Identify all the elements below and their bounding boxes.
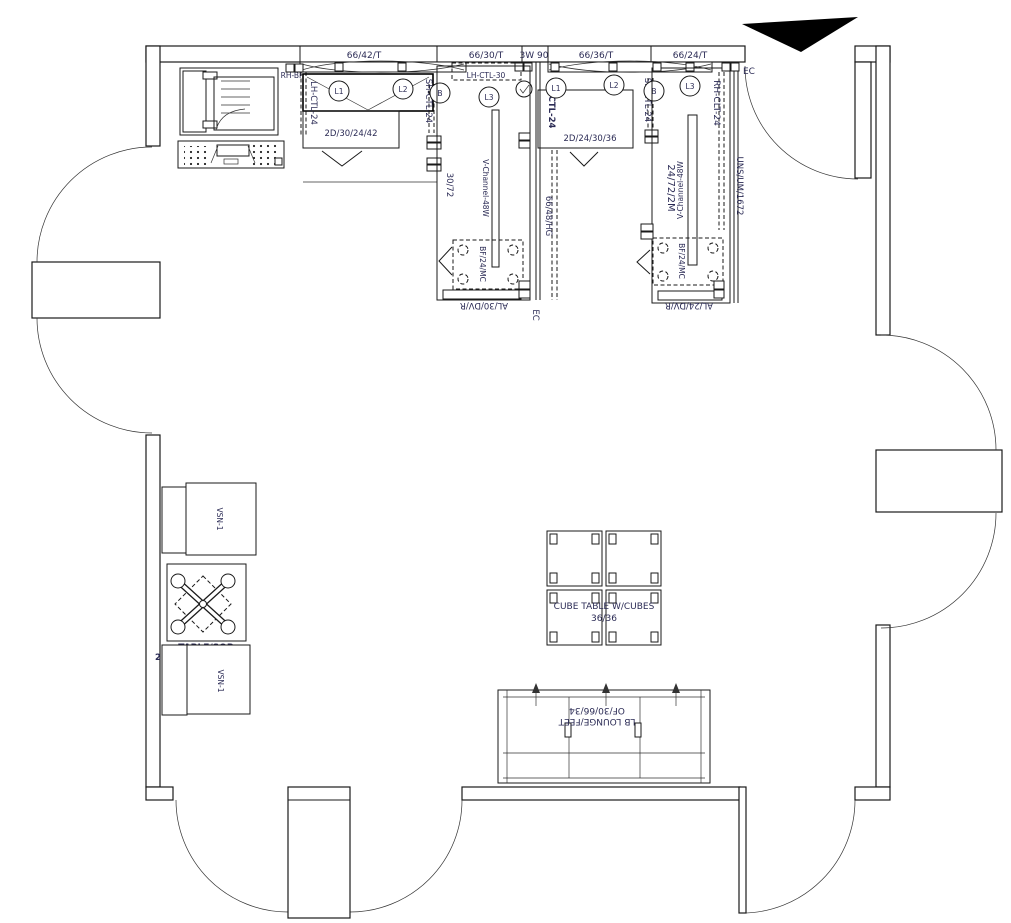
lounge-size-label: OF/30/66/34 <box>569 705 625 715</box>
bay2-panel-left-label: RH-CLT-24 <box>711 80 721 126</box>
wall-right-lower <box>876 625 890 787</box>
wall-right-upper <box>876 46 890 335</box>
svg-text:B: B <box>437 89 442 98</box>
door-arc-right-lower <box>881 513 996 628</box>
door-leaves-bottom-pair <box>288 787 350 918</box>
panel-band-1 <box>300 62 466 72</box>
bay2-channel-label: V-Channel-48W <box>676 160 685 218</box>
station1-panel-right-label: SH-CTL-24 <box>423 79 433 123</box>
svg-text:L2: L2 <box>610 81 619 90</box>
left-furniture: VSN-1 TABLE/SQR 2MM/24/24/16/AX/G VSN-1 <box>155 483 256 715</box>
tag-chevron-left-2 <box>637 250 650 274</box>
cube-table-title: CUBE TABLE W/CUBES <box>554 602 655 612</box>
dim-label-1: 66/42/T <box>347 51 382 61</box>
door-arc-left-upper <box>37 147 152 262</box>
tag-chevron-down-2 <box>570 152 598 166</box>
divider-panel-label: 66/48/HG <box>543 196 553 236</box>
bay1-size-label: 30/72 <box>444 173 454 198</box>
bay2-size-label: 24/72/2M <box>665 164 676 211</box>
chair-top-back <box>162 487 186 553</box>
dim-label-4: 66/36/T <box>579 51 614 61</box>
tag-chevron-down-1 <box>322 151 362 166</box>
station1-panel-left-label: LH-CTL-24 <box>308 81 318 125</box>
door-arc-bottom-right <box>742 800 855 913</box>
lounge-seating: LB LOUNGE/FEET OF/30/66/34 <box>498 683 710 783</box>
bay2-base-bar <box>658 291 722 300</box>
dim-label-5: 66/24/T <box>673 51 708 61</box>
tag-chevron-left-1 <box>439 247 452 275</box>
wall-left-lower <box>146 435 160 787</box>
bay2-panel-right-label: UNS/UM/1672 <box>734 157 744 216</box>
bay1-bf-box <box>453 240 523 289</box>
door-arc-top-right <box>745 66 858 179</box>
floor-plan-canvas: 66/42/T 66/30/T 3W 90 66/36/T 66/24/T EC… <box>0 0 1011 923</box>
wall-top-left-run <box>146 46 745 62</box>
worksurface-1 <box>303 74 433 111</box>
bay1-channel-label: V-Channel-48W <box>481 159 490 217</box>
wall-left-pier <box>32 262 160 318</box>
lounge-name-label: LB LOUNGE/FEET <box>558 716 635 726</box>
door-arc-bottom-left <box>176 800 288 912</box>
door-arc-right-upper <box>881 335 996 450</box>
wall-left-upper <box>146 46 160 146</box>
cube-table-size: 36/36 <box>591 614 617 624</box>
svg-text:L1: L1 <box>335 87 344 96</box>
chair-bottom-label: VSN-1 <box>216 670 225 693</box>
bay1-channel <box>492 110 499 267</box>
wall-right-pier <box>876 450 1002 512</box>
north-arrow-triangle <box>742 17 858 52</box>
dim-label-2: 66/30/T <box>469 51 504 61</box>
wall-bottom-right-corner <box>855 787 890 800</box>
bay2-channel <box>688 115 697 265</box>
bay2-base-label: AL/24/DV/R <box>665 300 713 310</box>
workstation-1: LH-CTL-24 SH-CTL-24 2D/30/24/42 L1 L2 B <box>286 61 466 182</box>
workstation-2: LH-CTL-24 SH-CTL-24 2D/24/30/36 L1 L2 B … <box>538 61 712 166</box>
door-leaf-top-right <box>855 62 871 178</box>
ec-label-top: EC <box>743 67 755 77</box>
lounge-outline <box>498 690 710 783</box>
bay1-base-label: AL/30/DV/R <box>460 300 508 310</box>
svg-text:L2: L2 <box>399 85 408 94</box>
chair-top-label: VSN-1 <box>215 508 224 531</box>
copier-keypad-left <box>184 146 208 165</box>
bay1-base-bar <box>443 290 521 299</box>
copier-keypad-right <box>252 144 278 166</box>
bay2-file-label: BF/24/MC <box>677 243 686 279</box>
chair-bottom-back <box>162 645 187 715</box>
bay1-file-label: BF/24/MC <box>478 246 487 282</box>
svg-text:L3: L3 <box>686 82 695 91</box>
mid-panel-label: LH-CTL-30 <box>467 71 506 80</box>
door-arc-left-lower <box>37 318 152 433</box>
svg-text:L1: L1 <box>552 84 561 93</box>
station2-cabinet-label: 2D/24/30/36 <box>564 134 617 144</box>
dim-label-3: 3W 90 <box>520 51 549 61</box>
station1-cabinet-label: 2D/30/24/42 <box>325 129 378 139</box>
copier-display <box>217 145 249 156</box>
door-leaf-bottom-right <box>739 787 746 913</box>
svg-text:L3: L3 <box>485 93 494 102</box>
bay1-ec-label: EC <box>530 309 540 320</box>
cube-table: CUBE TABLE W/CUBES 36/36 <box>547 531 661 645</box>
wall-bottom-center <box>462 787 740 800</box>
copier: RH-BF <box>178 68 303 168</box>
door-arc-bottom-center <box>350 800 462 912</box>
floor-plan-drawing: 66/42/T 66/30/T 3W 90 66/36/T 66/24/T EC… <box>0 0 1011 923</box>
wall-bottom-left-stub <box>146 787 173 800</box>
